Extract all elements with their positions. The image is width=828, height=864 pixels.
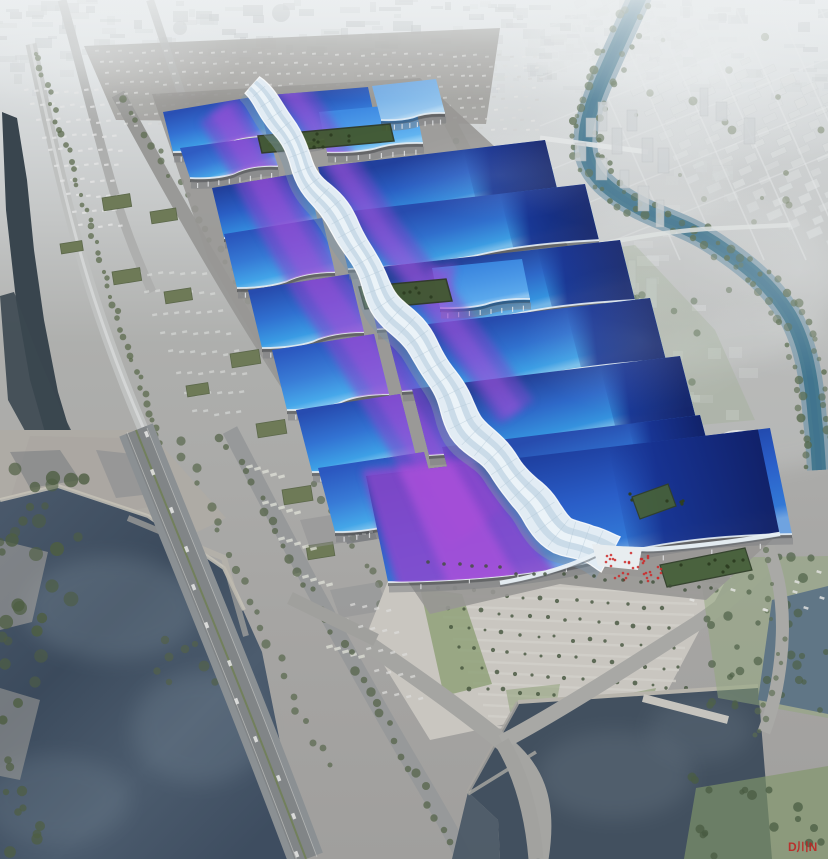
svg-text:D川N: D川N (788, 840, 817, 854)
